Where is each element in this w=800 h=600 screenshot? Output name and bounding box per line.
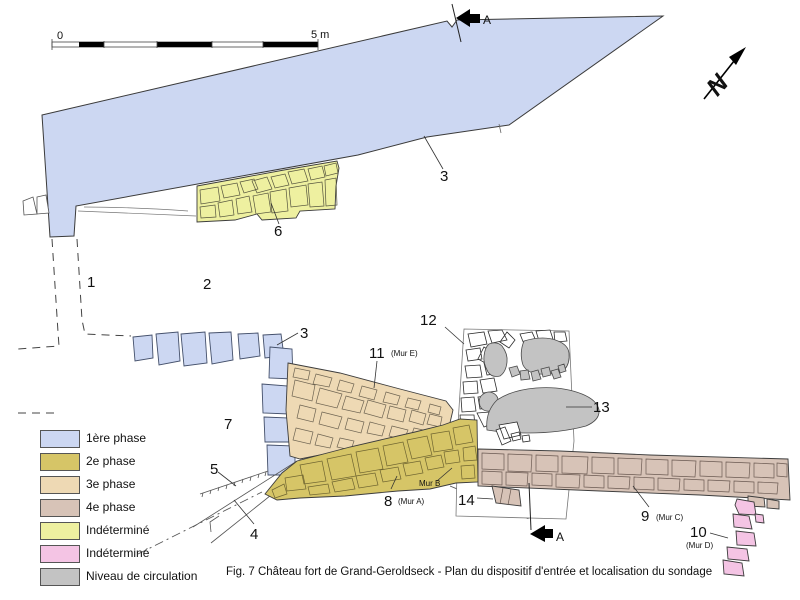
label-7: 7 [224, 416, 232, 433]
section-arrow-bottom-icon [530, 525, 553, 542]
legend-label-phase1: 1ère phase [86, 431, 146, 445]
label-12: 12 [420, 312, 437, 329]
loose-stones-left [23, 195, 49, 215]
legend-label-indet-yellow: Indéterminé [86, 523, 149, 537]
legend-label-circulation: Niveau de circulation [86, 569, 197, 583]
label-8: 8 [384, 493, 392, 510]
dashed-wall-lines [18, 239, 131, 413]
label-9-sub: (Mur C) [656, 513, 683, 522]
label-mur-b: Mur B [419, 479, 440, 488]
label-2: 2 [203, 276, 211, 293]
stones-phase1-row [133, 332, 295, 475]
archaeological-plan-figure: N 0 5 m A A 3 6 1 2 3 12 11 (Mur E) 13 7… [0, 0, 800, 600]
legend-swatch-circulation [40, 568, 80, 586]
legend-swatch-indet-yellow [40, 522, 80, 540]
section-label-bottom: A [556, 530, 564, 544]
scale-bar [52, 39, 318, 50]
label-6: 6 [274, 223, 282, 240]
legend-swatch-phase2 [40, 453, 80, 471]
legend-label-phase3: 3e phase [86, 477, 135, 491]
legend-label-indet-pink: Indéterminé [86, 546, 149, 560]
legend-label-phase2: 2e phase [86, 454, 135, 468]
label-3-upper: 3 [440, 168, 448, 185]
north-arrowhead-icon [729, 47, 746, 65]
label-1: 1 [87, 274, 95, 291]
wall-phase1-upper [42, 16, 663, 237]
legend-swatch-phase3 [40, 476, 80, 494]
legend-swatch-phase1 [40, 430, 80, 448]
legend-label-phase4: 4e phase [86, 500, 135, 514]
legend-swatch-phase4 [40, 499, 80, 517]
figure-caption: Fig. 7 Château fort de Grand-Geroldseck … [226, 566, 712, 578]
label-11-sub: (Mur E) [391, 349, 418, 358]
label-8-sub: (Mur A) [398, 497, 425, 506]
label-13: 13 [593, 399, 610, 416]
label-14: 14 [458, 492, 475, 509]
label-3-lower: 3 [300, 325, 308, 342]
ground-lines [78, 207, 196, 216]
masonry-indet-pink-mur-d [723, 499, 764, 576]
scale-label-zero: 0 [57, 30, 63, 42]
label-4: 4 [250, 526, 258, 543]
north-arrow: N [701, 47, 746, 101]
legend-swatch-indet-pink [40, 545, 80, 563]
label-11: 11 [369, 345, 385, 362]
label-10-sub: (Mur D) [686, 541, 713, 550]
section-label-top: A [483, 13, 491, 27]
label-9: 9 [641, 508, 649, 525]
label-5: 5 [210, 461, 218, 478]
scale-label-5m: 5 m [311, 29, 329, 41]
label-10: 10 [690, 524, 707, 541]
